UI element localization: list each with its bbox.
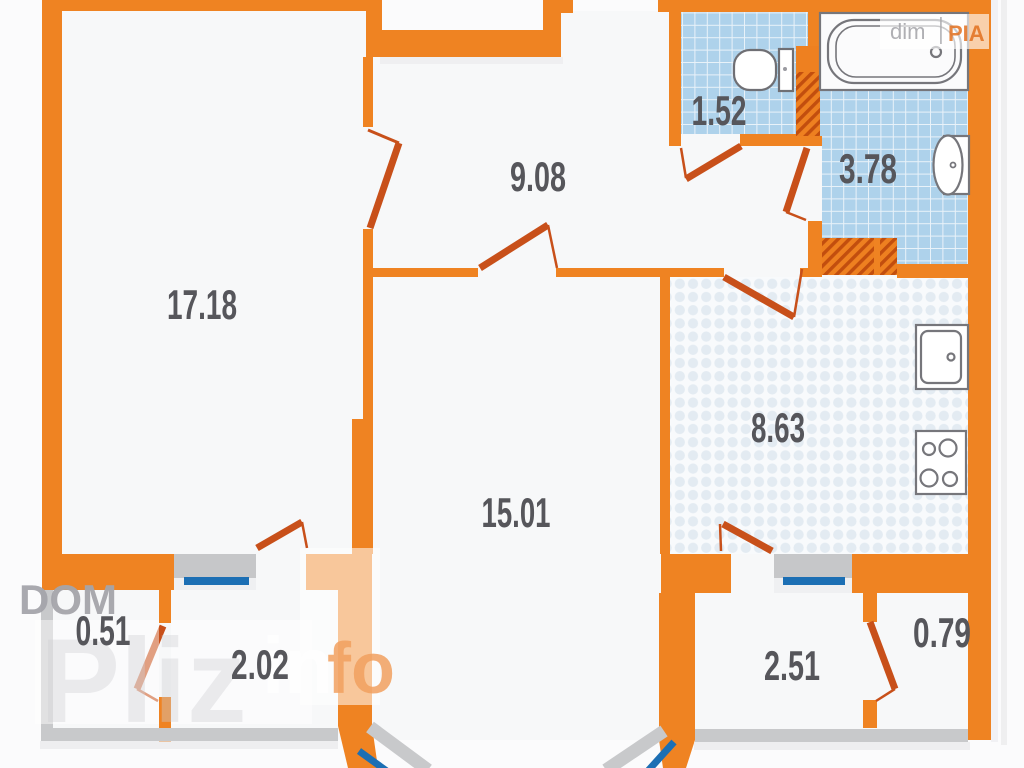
svg-text:0.79: 0.79 — [913, 609, 971, 656]
svg-text:2.51: 2.51 — [764, 642, 820, 689]
svg-text:9.08: 9.08 — [510, 153, 566, 200]
svg-text:fo: fo — [327, 629, 395, 709]
svg-text:2.02: 2.02 — [231, 641, 289, 688]
svg-text:dim: dim — [890, 19, 925, 44]
svg-text:15.01: 15.01 — [482, 489, 551, 536]
svg-text:РІА: РІА — [948, 21, 985, 46]
svg-text:0.51: 0.51 — [76, 607, 131, 654]
svg-text:1.52: 1.52 — [692, 87, 747, 134]
svg-text:Pliz: Pliz — [40, 614, 247, 748]
svg-text:3.78: 3.78 — [839, 145, 897, 192]
svg-text:8.63: 8.63 — [751, 404, 805, 451]
svg-text:17.18: 17.18 — [167, 281, 237, 328]
